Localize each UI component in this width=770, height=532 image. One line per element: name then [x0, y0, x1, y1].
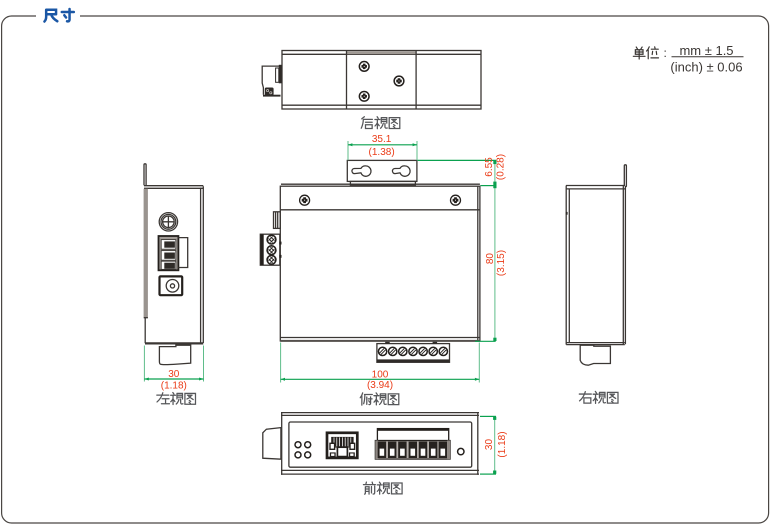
svg-text:(1.38): (1.38) [369, 147, 395, 158]
svg-text:30: 30 [484, 439, 495, 451]
svg-text:30: 30 [168, 369, 180, 380]
svg-text:(3.15): (3.15) [496, 250, 507, 276]
svg-text:(1.18): (1.18) [497, 431, 508, 457]
svg-text:(1.18): (1.18) [161, 381, 187, 392]
svg-text:mm ± 1.5: mm ± 1.5 [679, 43, 733, 58]
svg-text:6.55: 6.55 [484, 157, 495, 177]
svg-text:35.1: 35.1 [372, 134, 392, 145]
svg-text:100: 100 [372, 369, 389, 380]
svg-text::: : [664, 46, 667, 60]
svg-text:(3.94): (3.94) [367, 380, 393, 391]
svg-text:(inch) ± 0.06: (inch) ± 0.06 [670, 59, 742, 74]
svg-text:(0.28): (0.28) [496, 154, 507, 180]
svg-text:80: 80 [485, 253, 496, 265]
